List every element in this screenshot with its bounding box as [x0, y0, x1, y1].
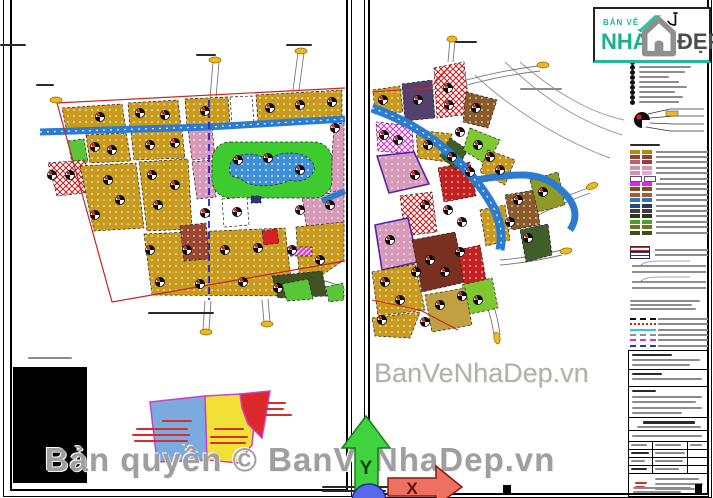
title-block-section — [629, 431, 708, 442]
title-block-section — [629, 370, 708, 387]
left-zoning-map — [40, 48, 345, 335]
right-zoning-map — [372, 36, 624, 344]
banvenhadep-logo: BẢN VẼ NHÀ ĐẸP — [593, 7, 711, 63]
zoning-maps-canvas — [0, 0, 713, 498]
title-block — [628, 350, 709, 497]
legend-line-types — [630, 316, 708, 348]
logo-tagline: BẢN VẼ — [603, 18, 639, 27]
legend-panel — [630, 60, 708, 348]
title-block-section — [629, 387, 708, 418]
legend-symbol-row — [630, 100, 708, 105]
drawing-preview: Y X BẢN VẼ NHÀ ĐẸP — [0, 0, 713, 498]
legend-symbol-key — [630, 60, 708, 105]
bottom-note-square — [503, 485, 511, 493]
sheet-number-box — [695, 484, 702, 493]
legend-road-sections — [630, 258, 708, 292]
house-icon — [637, 12, 681, 58]
legend-linetype-row — [630, 343, 708, 348]
watermark-bottom: Bản quyền © BanVeNhaDep.vn — [40, 441, 560, 479]
watermark-center: BanVeNhaDep.vn — [374, 358, 589, 389]
title-block-table — [629, 442, 708, 473]
legend-color-key — [630, 149, 708, 235]
logo-name-secondary: ĐẸP — [677, 29, 713, 55]
title-block-section — [629, 351, 708, 370]
legend-symbol-example — [630, 105, 708, 135]
title-block-section — [629, 418, 708, 431]
